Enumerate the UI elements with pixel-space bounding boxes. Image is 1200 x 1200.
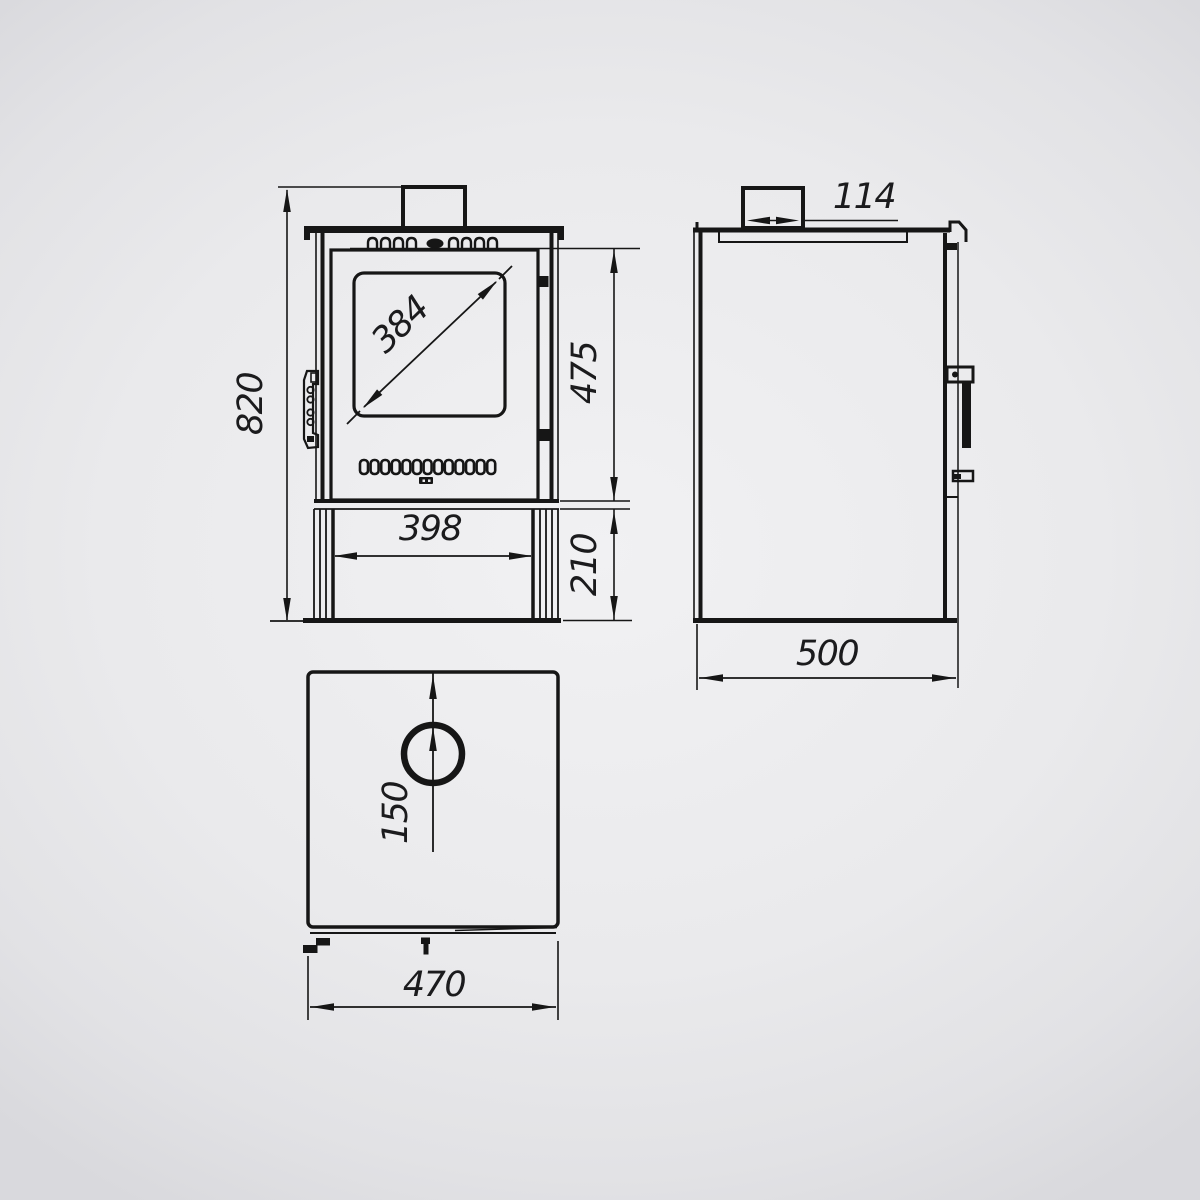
arrowhead-left <box>747 217 770 225</box>
dim-base-width: 398 <box>334 509 532 560</box>
handle-top-view <box>303 938 330 953</box>
arrowhead-up <box>610 511 618 534</box>
front-edge-top-view <box>303 928 557 955</box>
dim-firebox-height: 475 <box>560 248 630 509</box>
handle-pivot <box>952 372 958 378</box>
handle-pin <box>307 436 314 442</box>
arrowhead-bottomleft <box>360 389 382 410</box>
vent-arch <box>394 238 403 248</box>
top-view: 150 470 <box>303 672 558 1020</box>
arrowhead-topright <box>478 278 500 299</box>
front-view: 820 <box>231 187 640 621</box>
vent-slot <box>392 460 400 474</box>
dim-210-label: 210 <box>565 534 605 597</box>
vent-arch <box>462 238 471 248</box>
top-plate-lip-right <box>558 233 564 240</box>
front-top-step <box>950 222 966 242</box>
flue-collar-side <box>743 188 803 228</box>
vent-slot <box>381 460 389 474</box>
vent-arch <box>368 238 377 248</box>
arrowhead-left <box>334 552 357 560</box>
arrowhead-right <box>509 552 532 560</box>
handle-bracket <box>947 367 973 382</box>
corner-tick-topright <box>499 266 512 279</box>
vent-slot <box>371 460 379 474</box>
arrowhead-right <box>932 674 955 682</box>
arrowhead-right <box>776 217 799 225</box>
dim-114-label: 114 <box>833 177 895 217</box>
dim-500-label: 500 <box>796 634 859 674</box>
damper-knob <box>427 239 444 249</box>
arrowhead-up <box>610 250 618 273</box>
vent-latch-rivet <box>423 480 426 483</box>
corner-tick-bottomleft <box>347 411 360 424</box>
door-catch <box>945 243 957 250</box>
vent-arch <box>407 238 416 248</box>
vent-slot <box>487 460 495 474</box>
stove-dimension-drawing: 820 <box>0 0 1200 1200</box>
arrowhead-up <box>283 189 291 212</box>
side-view: 114 50 <box>693 177 973 690</box>
dim-body-width: 470 <box>308 941 558 1020</box>
flue-collar-front <box>403 187 465 228</box>
vent-arch <box>475 238 484 248</box>
vent-slot <box>466 460 474 474</box>
vent-slot <box>402 460 410 474</box>
vent-slot <box>413 460 421 474</box>
arrowhead-up-circle <box>429 727 437 751</box>
vent-arch <box>488 238 497 248</box>
vent-slot <box>477 460 485 474</box>
lower-catch-pin <box>953 474 961 479</box>
dim-820-label: 820 <box>231 373 271 436</box>
dim-depth: 500 <box>697 624 956 690</box>
top-vent-row <box>350 238 640 249</box>
dim-470-label: 470 <box>403 965 466 1005</box>
dim-base-height: 210 <box>563 509 632 621</box>
handle-lever <box>962 382 971 448</box>
vent-slot <box>434 460 442 474</box>
top-recess <box>719 232 907 242</box>
drawing-sheet: 820 <box>0 0 1200 1200</box>
vent-latch-rivet <box>428 480 431 483</box>
bottom-vent-row <box>360 460 495 484</box>
latch-top-view <box>421 938 430 945</box>
vent-latch <box>419 477 433 484</box>
top-plate-lip-left <box>304 233 310 240</box>
arrowhead-left <box>311 1003 334 1011</box>
vent-arch <box>381 238 390 248</box>
arrowhead-left <box>700 674 723 682</box>
dim-398-label: 398 <box>399 509 462 549</box>
arrowhead-right <box>532 1003 555 1011</box>
vent-arch <box>449 238 458 248</box>
door-handle-side <box>947 367 973 481</box>
dim-384-label: 384 <box>364 289 437 361</box>
arrowhead-down <box>610 596 618 619</box>
vent-slot <box>455 460 463 474</box>
door-glass: 384 <box>347 266 512 424</box>
arrowhead-down <box>283 598 291 621</box>
hinge-bottom <box>538 429 550 441</box>
vent-slot <box>360 460 368 474</box>
latch-stem-top-view <box>424 944 429 955</box>
dim-flue-width: 114 <box>747 177 898 224</box>
hinge-top <box>538 276 549 287</box>
arrowhead-down <box>610 477 618 500</box>
top-plate-bar <box>304 226 564 233</box>
vent-slot <box>424 460 432 474</box>
arrowhead-up-edge <box>429 675 437 699</box>
stove-body-side <box>693 222 966 688</box>
top-plate <box>304 226 564 240</box>
vent-slot <box>445 460 453 474</box>
dim-150-label: 150 <box>376 782 416 845</box>
dim-475-label: 475 <box>565 342 605 405</box>
